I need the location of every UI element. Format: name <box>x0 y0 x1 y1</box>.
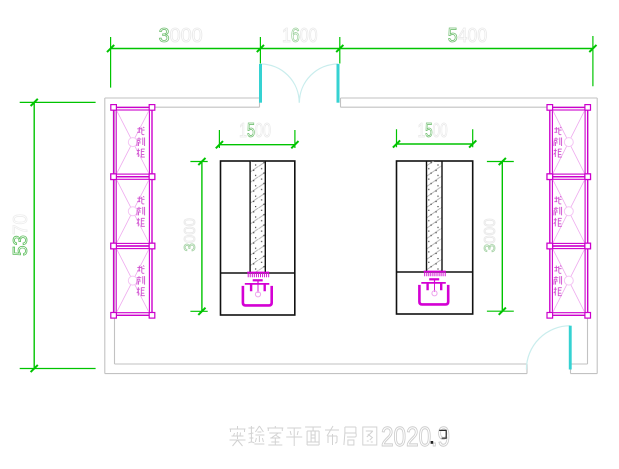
svg-text:1500: 1500 <box>418 119 448 142</box>
svg-text:1600: 1600 <box>282 24 318 47</box>
svg-text:3000: 3000 <box>159 24 203 47</box>
svg-text:2020.9: 2020.9 <box>381 421 450 452</box>
svg-text:3000: 3000 <box>482 218 499 252</box>
svg-text:5400: 5400 <box>448 24 487 47</box>
svg-text:1500: 1500 <box>239 119 271 142</box>
svg-text:5370: 5370 <box>9 214 32 256</box>
svg-text:3000: 3000 <box>182 218 199 252</box>
